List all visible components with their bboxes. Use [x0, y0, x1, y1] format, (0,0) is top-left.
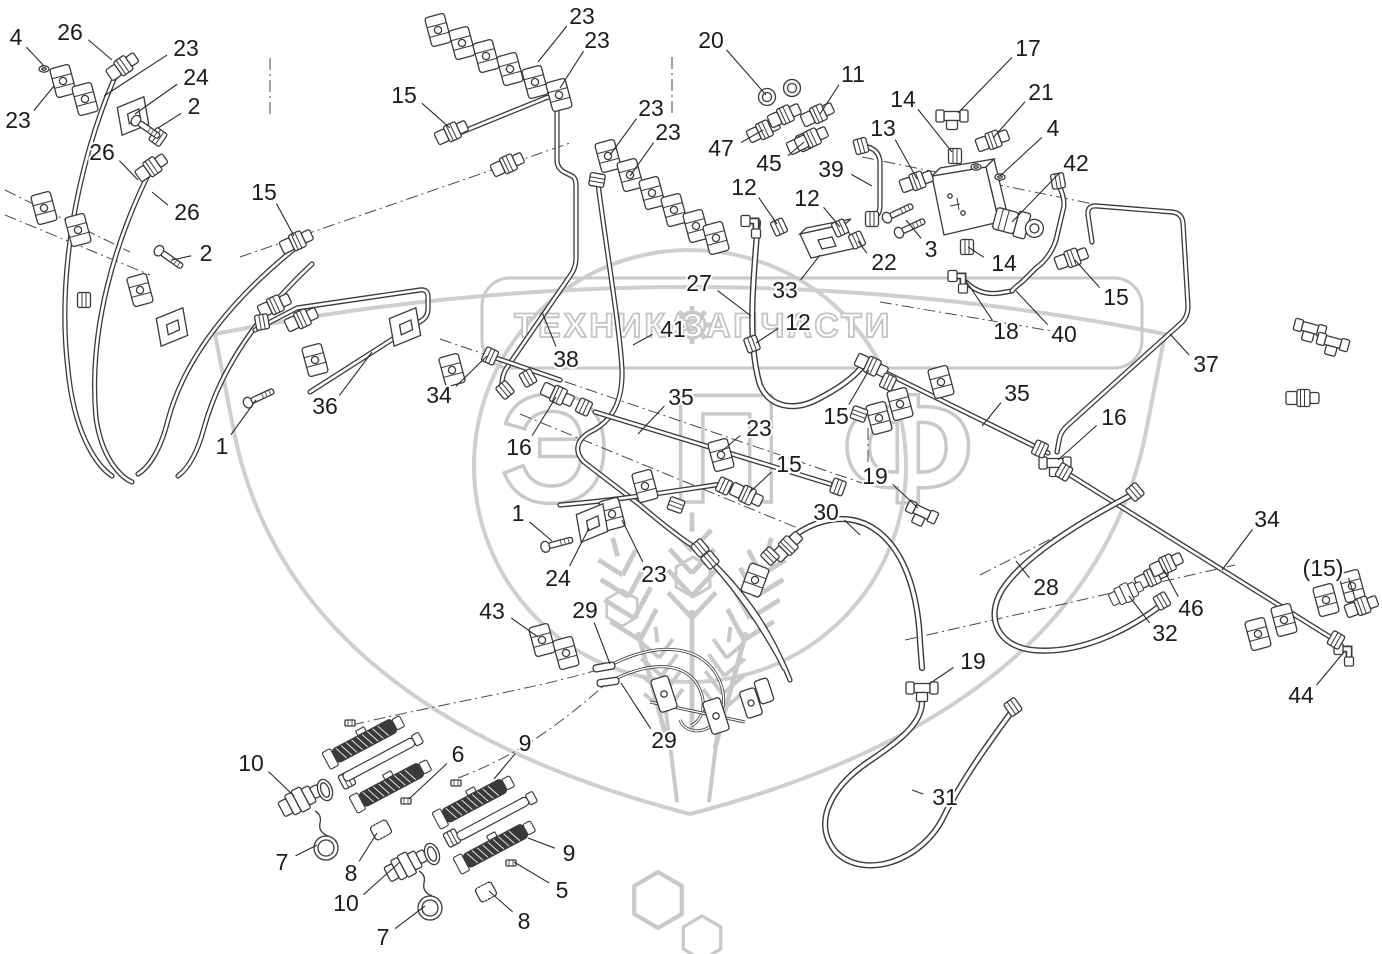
callout-leader-line	[958, 58, 1012, 113]
union-fitting-icon	[974, 127, 1011, 154]
callout-26: 26	[152, 192, 200, 225]
elbow-fitting-icon	[741, 216, 761, 239]
washer-icon	[39, 66, 49, 72]
callout-13: 13	[870, 115, 917, 179]
part-number-label: 35	[668, 384, 694, 410]
nut-icon	[853, 137, 869, 155]
clip-screw-icon	[451, 780, 461, 786]
callout-leader-line	[359, 833, 377, 861]
part-number-label: 15	[1103, 284, 1129, 310]
callout-leader-line	[621, 683, 651, 729]
part-number-label: 23	[641, 561, 667, 587]
clamp-icon	[71, 82, 98, 116]
clamp-icon	[1312, 583, 1339, 617]
callout-leader-line	[993, 102, 1025, 138]
union-fitting-icon	[278, 227, 315, 256]
callout-4: 4	[1000, 115, 1060, 176]
part-number-label: 15	[251, 179, 277, 205]
part-number-label: 39	[818, 156, 844, 182]
bolt-icon	[242, 386, 276, 410]
callout-23: 23	[560, 27, 610, 88]
callout-34: 34	[1222, 506, 1280, 570]
part-number-label: 47	[708, 135, 734, 161]
nut-icon	[770, 217, 788, 236]
callout-leader-line	[610, 119, 637, 155]
callout-4: 4	[10, 24, 44, 66]
callout-leader-line	[268, 772, 294, 796]
callout-19: 19	[929, 648, 986, 684]
union-fitting-icon	[799, 100, 836, 129]
part-number-label: 32	[1152, 620, 1178, 646]
callout-7: 7	[377, 906, 425, 950]
callout-2: 2	[158, 93, 200, 128]
part-number-label: 23	[746, 415, 772, 441]
callout-leader-line	[851, 174, 872, 186]
part-number-label: 10	[333, 890, 359, 916]
hex-nut-icon	[634, 872, 682, 928]
callout-37: 37	[1170, 334, 1219, 377]
part-number-label: 26	[89, 139, 115, 165]
union-fitting-icon	[1286, 390, 1319, 407]
part-number-label: 26	[174, 199, 200, 225]
part-number-label: 24	[545, 565, 571, 591]
callout-20: 20	[698, 27, 766, 95]
part-number-label: 14	[991, 250, 1017, 276]
part-number-label: 24	[183, 64, 209, 90]
pipe-stub-icon	[597, 677, 620, 687]
part-number-label: 46	[1178, 595, 1204, 621]
tee-fitting-icon	[906, 682, 938, 702]
nut-icon	[588, 172, 605, 187]
callout-leader-line	[34, 86, 54, 110]
callout-leader-line	[966, 281, 992, 320]
clamp-icon	[660, 193, 687, 227]
hose-pipe	[95, 167, 152, 482]
callout-43: 43	[479, 598, 538, 637]
callout-10: 10	[238, 750, 294, 796]
part-number-label: 42	[1063, 150, 1089, 176]
callout-leader-line	[152, 192, 168, 205]
callout-39: 39	[818, 156, 872, 186]
callout-leader-line	[895, 140, 917, 179]
clamp-icon	[638, 176, 665, 210]
part-number-label: 23	[5, 107, 31, 133]
union-fitting-icon	[766, 101, 803, 130]
part-number-label: 29	[651, 727, 677, 753]
part-number-label: 5	[556, 877, 569, 903]
clip-screw-icon	[345, 720, 355, 726]
watermark-emblem: ТЕХНИКА ЗАПЧАСТИ ЭПФ	[215, 250, 1165, 954]
part-number-label: 35	[1004, 380, 1030, 406]
parts-diagram-canvas: ТЕХНИКА ЗАПЧАСТИ ЭПФ	[0, 0, 1382, 954]
callout-16: 16	[1058, 404, 1127, 460]
callout-leader-line	[158, 113, 181, 128]
callout-26: 26	[57, 19, 112, 60]
coupler-sleeve-icon	[430, 770, 516, 830]
bolt-icon	[152, 244, 185, 272]
clamp-icon	[552, 636, 579, 670]
callout-leader-line	[1164, 570, 1178, 597]
part-number-label: (15)	[1303, 555, 1344, 581]
part-number-label: 13	[870, 115, 896, 141]
callout-21: 21	[993, 79, 1054, 138]
callout-22: 22	[858, 241, 897, 275]
part-number-label: 22	[871, 249, 897, 275]
callout-31: 31	[912, 784, 958, 810]
callout-5: 5	[514, 862, 568, 903]
union-fitting-icon	[1053, 245, 1090, 272]
part-number-label: 36	[312, 393, 338, 419]
callout-12: 12	[794, 185, 840, 227]
clip-screw-icon	[506, 860, 516, 866]
coupler-plug-icon	[382, 844, 431, 885]
part-number-label: 9	[519, 730, 532, 756]
part-number-label: 40	[1051, 321, 1077, 347]
callout-8: 8	[345, 833, 377, 886]
plug-insert-icon	[475, 881, 498, 903]
callout-leader-line	[912, 790, 923, 794]
callout-leader-line	[560, 51, 584, 88]
callout-47: 47	[708, 130, 763, 161]
part-number-label: 12	[794, 185, 820, 211]
part-number-label: 16	[506, 434, 532, 460]
part-number-label: 8	[518, 908, 531, 934]
clamp-icon	[126, 273, 153, 307]
part-number-label: 1	[216, 433, 229, 459]
callout-leader-line	[1012, 172, 1060, 222]
part-number-label: 20	[698, 27, 724, 53]
clamp-icon	[424, 13, 451, 47]
dust-cap-icon	[418, 871, 442, 920]
part-number-label: 23	[584, 27, 610, 53]
callout-leader-line	[528, 838, 555, 848]
part-number-label: 45	[756, 150, 782, 176]
coupler-assemblies	[276, 577, 1146, 920]
pipe-stub-icon	[593, 662, 616, 673]
flange-icon	[759, 89, 776, 106]
callout-46: 46	[1164, 570, 1204, 621]
clamp-icon	[521, 65, 548, 99]
clamp-icon	[496, 52, 523, 86]
clamp-icon	[30, 191, 57, 225]
coupler-sleeve-icon	[347, 754, 433, 814]
part-number-label: 9	[563, 840, 576, 866]
callout-leader-line	[88, 40, 112, 60]
part-number-label: 19	[960, 648, 986, 674]
part-number-label: 23	[173, 35, 199, 61]
tee-fitting-icon	[936, 110, 968, 130]
part-number-label: 12	[731, 174, 757, 200]
clamp-icon	[1270, 603, 1297, 637]
tee-fitting-icon	[1314, 332, 1350, 359]
callout-7: 7	[276, 845, 317, 875]
part-number-label: 30	[813, 499, 839, 525]
callout-leader-line	[26, 47, 44, 66]
nut-icon	[254, 313, 269, 330]
callout-leader-line	[1170, 334, 1189, 355]
callout-leader-line	[538, 26, 567, 62]
part-number-label: 6	[452, 741, 465, 767]
part-number-label: 23	[638, 95, 664, 121]
callout-29: 29	[572, 597, 610, 664]
callout-42: 42	[1012, 150, 1089, 222]
callout-44: 44	[1288, 652, 1344, 708]
part-number-label: 7	[377, 924, 390, 950]
wedge-plate-icon	[155, 308, 188, 346]
wedge-plate-icon	[388, 308, 421, 346]
coupler-sleeve-icon	[320, 710, 406, 770]
part-number-label: 2	[200, 240, 213, 266]
callout-leader-line	[759, 197, 777, 224]
part-number-label: 7	[276, 849, 289, 875]
part-number-label: 37	[1193, 351, 1219, 377]
part-number-label: 12	[785, 309, 811, 335]
part-number-label: 8	[345, 860, 358, 886]
part-number-label: 19	[862, 463, 888, 489]
bolt-icon	[881, 201, 915, 225]
clamp-icon	[448, 26, 475, 60]
washer-icon	[995, 174, 1005, 180]
part-number-label: 41	[660, 316, 686, 342]
part-number-label: 44	[1288, 682, 1314, 708]
washer-icon	[971, 164, 981, 170]
elbow-fitting-icon	[948, 271, 968, 294]
callout-23: 23	[5, 86, 54, 133]
union-fitting-icon	[489, 150, 526, 179]
plug-insert-icon	[370, 819, 393, 841]
union-fitting-icon	[898, 168, 935, 195]
callout-15: 15	[391, 82, 450, 128]
callout-26: 26	[89, 139, 138, 180]
part-number-label: 16	[1101, 404, 1127, 430]
bolt-icon	[540, 534, 574, 553]
callout-9: 9	[528, 838, 575, 866]
part-number-label: 33	[772, 277, 798, 303]
callout-leader-line	[422, 103, 450, 128]
part-number-label: 17	[1015, 35, 1041, 61]
valve-block-33	[800, 219, 856, 258]
callout-14: 14	[968, 247, 1017, 276]
callout-15: 15	[1075, 260, 1129, 310]
clamp-icon	[545, 78, 572, 112]
part-number-label: 31	[932, 784, 958, 810]
nut-icon	[78, 293, 91, 308]
part-number-label: 11	[841, 61, 865, 87]
part-number-label: 14	[890, 86, 916, 112]
callout-leader-line	[801, 255, 820, 280]
callout-leader-line	[231, 400, 256, 435]
callout-leader-line	[1075, 260, 1100, 288]
part-number-label: 23	[655, 119, 681, 145]
union-fitting-icon	[133, 151, 170, 184]
part-number-label: 3	[925, 236, 938, 262]
coupler-plug-icon	[1107, 577, 1146, 609]
seal-ring-icon	[315, 777, 336, 802]
part-number-label: 23	[569, 3, 595, 29]
part-number-label: 18	[993, 318, 1019, 344]
clamp-icon	[1244, 617, 1271, 651]
clamp-icon	[528, 623, 555, 657]
callout-leader-line	[514, 862, 549, 883]
clamp-icon	[472, 39, 499, 73]
callout-leader-line	[594, 623, 610, 664]
part-number-label: 29	[572, 597, 598, 623]
part-number-label: 34	[426, 382, 452, 408]
parts-diagram-page: ТЕХНИКА ЗАПЧАСТИ ЭПФ	[0, 0, 1382, 954]
callout-leader-line	[1000, 137, 1042, 176]
solenoid-valve-icon	[991, 205, 1046, 243]
part-number-label: 4	[1047, 115, 1060, 141]
callout-leader-line	[339, 352, 372, 395]
callout-leader-line	[489, 891, 513, 912]
nut-icon	[866, 212, 879, 227]
callout-40: 40	[1016, 291, 1077, 347]
part-number-label: 2	[188, 93, 201, 119]
seal-ring-icon	[422, 841, 443, 866]
part-number-label: 43	[479, 598, 505, 624]
callout-12: 12	[731, 174, 777, 224]
part-number-label: 38	[553, 346, 579, 372]
dust-cap-icon	[314, 811, 338, 860]
part-number-label: 28	[1033, 574, 1059, 600]
union-fitting-icon	[433, 118, 470, 147]
callout-leader-line	[727, 50, 766, 95]
callout-leader-line	[929, 667, 954, 684]
part-number-label: 4	[10, 24, 23, 50]
part-number-label: 27	[686, 270, 712, 296]
callout-3: 3	[906, 220, 937, 262]
callout-leader-line	[1317, 652, 1344, 685]
part-number-label: 21	[1028, 79, 1054, 105]
callout-8: 8	[489, 891, 530, 934]
union-fitting-icon	[104, 50, 141, 83]
part-number-label: 15	[823, 403, 849, 429]
callout-9: 9	[494, 730, 531, 779]
hex-nut-icon	[683, 916, 720, 954]
callout-15: 15	[251, 179, 294, 236]
part-number-label: 26	[57, 19, 83, 45]
part-number-label: 34	[1254, 506, 1280, 532]
part-number-label: 15	[776, 451, 802, 477]
clamp-icon	[301, 343, 328, 377]
flange-icon	[784, 80, 801, 97]
part-number-label: 1	[512, 500, 525, 526]
callout-leader-line	[276, 204, 294, 236]
callout-leader-line	[395, 906, 425, 929]
callout-1: 1	[216, 400, 256, 459]
callout-leader-line	[1222, 529, 1252, 570]
bolt-icon	[893, 216, 927, 240]
part-number-label: 15	[391, 82, 417, 108]
part-number-label: 10	[238, 750, 264, 776]
nut-icon	[961, 240, 974, 255]
